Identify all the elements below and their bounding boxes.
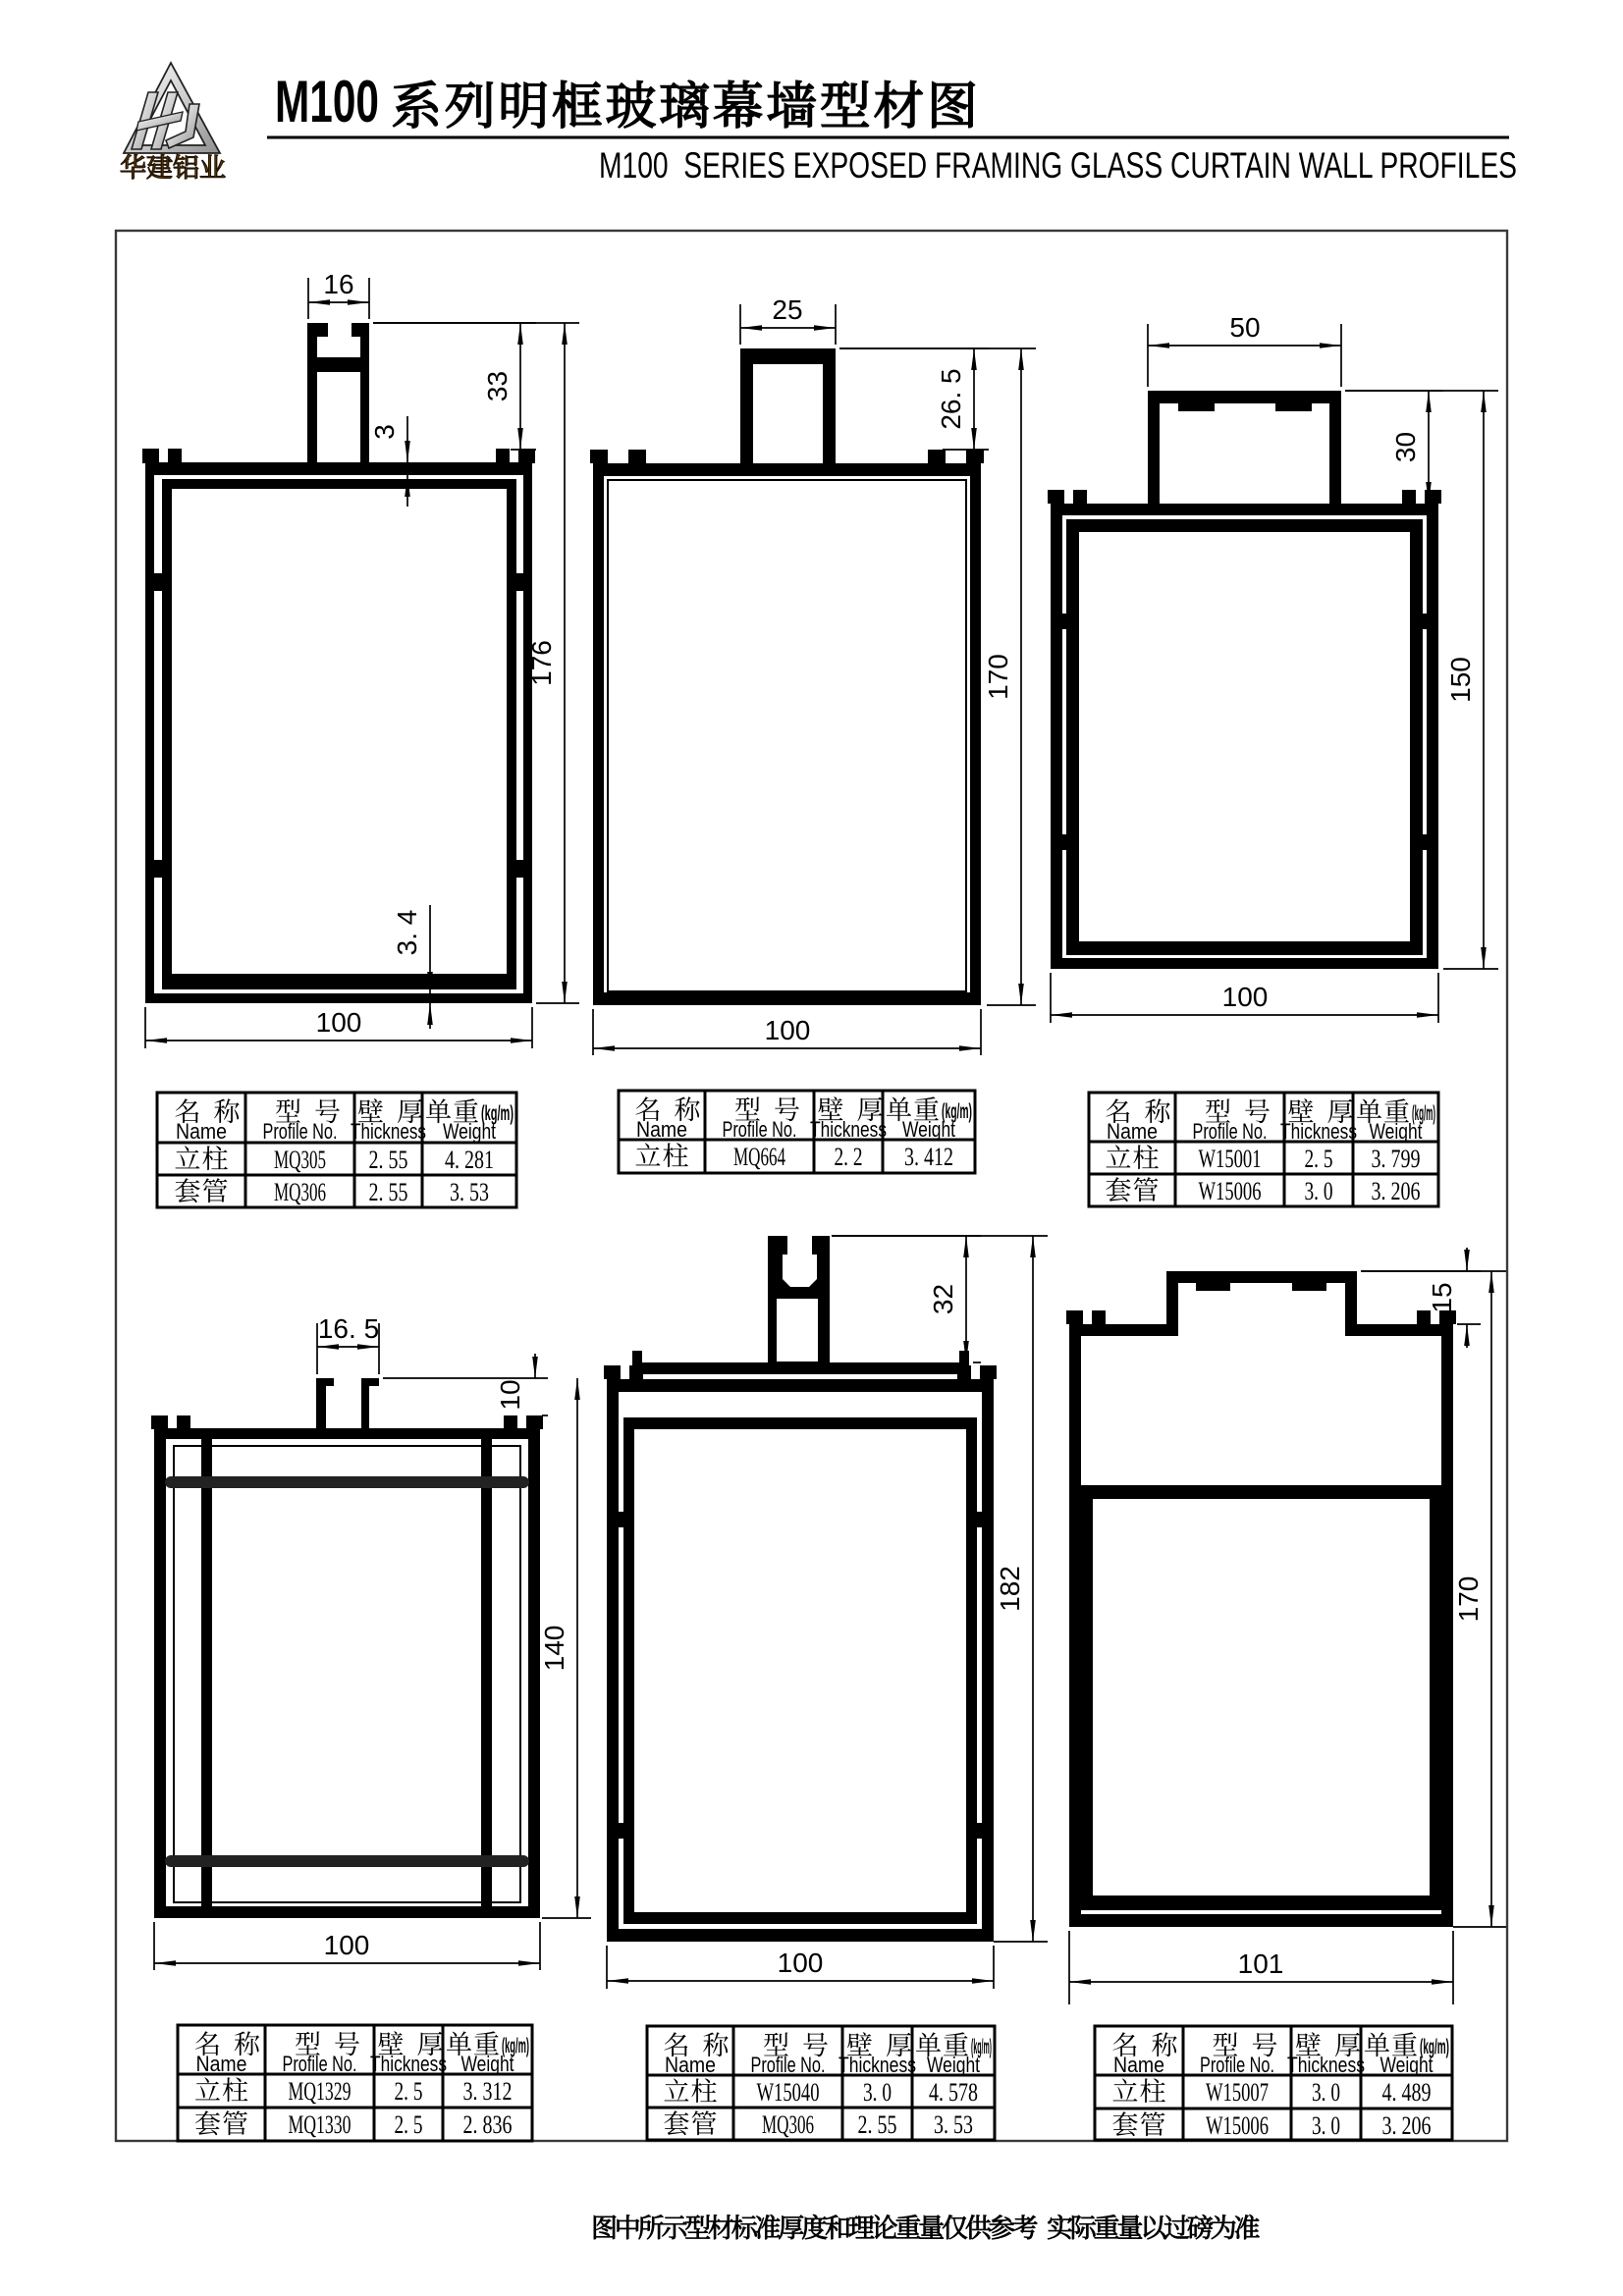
svg-text:Thickness: Thickness	[810, 1117, 887, 1142]
svg-text:Thickness: Thickness	[1280, 1119, 1357, 1144]
svg-text:MQ306: MQ306	[274, 1178, 326, 1206]
svg-text:182: 182	[995, 1566, 1025, 1612]
svg-text:16. 5: 16. 5	[318, 1313, 379, 1344]
svg-text:Weight: Weight	[461, 2052, 514, 2076]
svg-text:Profile No.: Profile No.	[1193, 1119, 1268, 1144]
svg-text:W15006: W15006	[1206, 2111, 1269, 2140]
svg-text:3. 799: 3. 799	[1372, 1145, 1421, 1173]
svg-text:Name: Name	[665, 2053, 716, 2077]
svg-text:MQ1330: MQ1330	[289, 2110, 352, 2139]
svg-text:15: 15	[1427, 1282, 1457, 1312]
svg-text:3. 0: 3. 0	[863, 2078, 892, 2107]
svg-text:30: 30	[1390, 432, 1421, 462]
svg-text:100: 100	[316, 1007, 362, 1038]
svg-text:4. 578: 4. 578	[929, 2078, 978, 2107]
svg-text:4. 489: 4. 489	[1382, 2078, 1432, 2107]
svg-text:33: 33	[482, 371, 513, 401]
svg-text:26. 5: 26. 5	[936, 368, 966, 429]
svg-text:Name: Name	[1107, 1119, 1158, 1144]
svg-text:3. 412: 3. 412	[904, 1143, 953, 1171]
svg-text:MQ306: MQ306	[762, 2110, 814, 2139]
svg-text:2. 55: 2. 55	[858, 2110, 897, 2139]
svg-text:101: 101	[1238, 1949, 1284, 1979]
svg-text:100: 100	[778, 1948, 824, 1978]
svg-text:W15006: W15006	[1199, 1177, 1262, 1205]
svg-text:Name: Name	[176, 1119, 227, 1144]
svg-text:3. 0: 3. 0	[1312, 2111, 1340, 2140]
svg-text:Weight: Weight	[1370, 1119, 1423, 1144]
svg-text:Profile No.: Profile No.	[751, 2053, 826, 2077]
svg-text:3. 206: 3. 206	[1372, 1177, 1421, 1205]
svg-text:Name: Name	[196, 2052, 247, 2076]
svg-text:176: 176	[526, 640, 557, 686]
svg-text:25: 25	[772, 294, 802, 325]
svg-text:3. 0: 3. 0	[1312, 2078, 1340, 2107]
svg-text:3: 3	[369, 424, 400, 440]
svg-text:50: 50	[1229, 312, 1260, 343]
svg-text:100: 100	[324, 1930, 370, 1960]
svg-text:Profile No.: Profile No.	[263, 1119, 338, 1144]
svg-text:3. 0: 3. 0	[1305, 1177, 1333, 1205]
svg-text:Weight: Weight	[902, 1117, 955, 1142]
svg-text:MQ305: MQ305	[274, 1146, 326, 1174]
svg-text:3. 4: 3. 4	[392, 910, 422, 956]
svg-text:W15007: W15007	[1206, 2078, 1269, 2107]
svg-text:Profile No.: Profile No.	[723, 1117, 797, 1142]
svg-text:3. 53: 3. 53	[934, 2110, 973, 2139]
svg-text:W15001: W15001	[1199, 1145, 1262, 1173]
svg-text:170: 170	[1453, 1576, 1484, 1623]
svg-text:2. 5: 2. 5	[1305, 1145, 1333, 1173]
svg-text:2. 55: 2. 55	[369, 1146, 408, 1174]
svg-text:MQ664: MQ664	[733, 1143, 785, 1171]
svg-text:3. 53: 3. 53	[450, 1178, 489, 1206]
svg-text:10: 10	[495, 1379, 525, 1410]
svg-text:Thickness: Thickness	[1287, 2053, 1365, 2077]
svg-text:32: 32	[928, 1284, 958, 1314]
svg-text:M100: M100	[275, 69, 379, 134]
svg-text:Name: Name	[636, 1117, 687, 1142]
svg-text:100: 100	[765, 1015, 811, 1045]
svg-text:140: 140	[539, 1626, 569, 1672]
svg-text:Weight: Weight	[443, 1119, 496, 1144]
svg-text:Thickness: Thickness	[351, 1119, 426, 1144]
svg-text:Thickness: Thickness	[839, 2053, 916, 2077]
svg-text:M100 SERIES EXPOSED FRAMING G: M100 SERIES EXPOSED FRAMING GLASS CURTAI…	[599, 145, 1517, 186]
svg-text:Thickness: Thickness	[370, 2052, 447, 2076]
svg-text:MQ1329: MQ1329	[289, 2077, 352, 2106]
svg-text:4. 281: 4. 281	[445, 1146, 494, 1174]
svg-text:3. 312: 3. 312	[463, 2077, 513, 2106]
svg-text:2. 55: 2. 55	[369, 1178, 408, 1206]
svg-text:2. 836: 2. 836	[463, 2110, 513, 2139]
svg-text:Profile No.: Profile No.	[283, 2052, 357, 2076]
svg-text:2. 2: 2. 2	[835, 1143, 863, 1171]
svg-text:2. 5: 2. 5	[395, 2110, 423, 2139]
svg-text:170: 170	[983, 654, 1013, 700]
svg-text:W15040: W15040	[757, 2078, 820, 2107]
svg-text:150: 150	[1445, 657, 1476, 703]
svg-text:Profile No.: Profile No.	[1200, 2053, 1274, 2077]
svg-text:2. 5: 2. 5	[395, 2077, 423, 2106]
svg-text:Weight: Weight	[927, 2053, 980, 2077]
svg-text:Name: Name	[1113, 2053, 1164, 2077]
svg-text:16: 16	[323, 269, 353, 299]
svg-text:Weight: Weight	[1380, 2053, 1434, 2077]
svg-text:100: 100	[1222, 982, 1269, 1012]
svg-text:3. 206: 3. 206	[1382, 2111, 1432, 2140]
